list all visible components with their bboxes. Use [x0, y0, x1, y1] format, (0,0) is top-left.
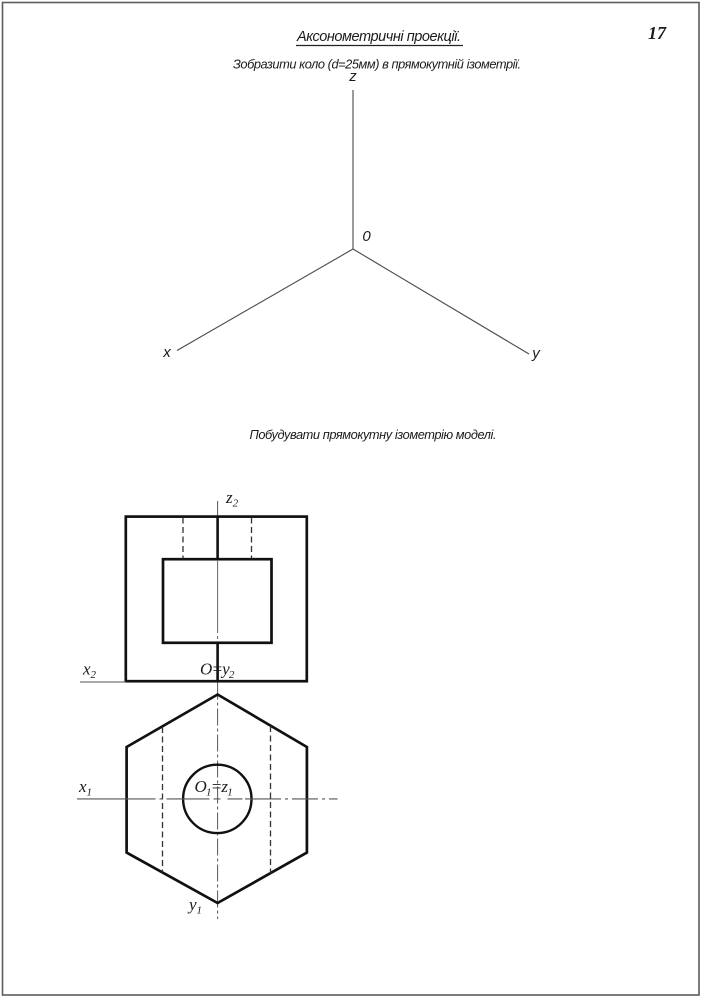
svg-text:z: z: [348, 68, 357, 85]
svg-text:17: 17: [648, 23, 667, 43]
svg-text:x: x: [162, 344, 171, 361]
svg-text:O1=z1: O1=z1: [195, 777, 233, 799]
svg-text:Аксонометричні проекції.: Аксонометричні проекції.: [296, 29, 461, 45]
svg-text:Зобразити коло (d=25мм) в прям: Зобразити коло (d=25мм) в прямокутній із…: [233, 57, 521, 72]
svg-text:0: 0: [362, 228, 371, 245]
svg-text:Побудувати прямокутну ізометрі: Побудувати прямокутну ізометрію моделі.: [250, 427, 497, 442]
